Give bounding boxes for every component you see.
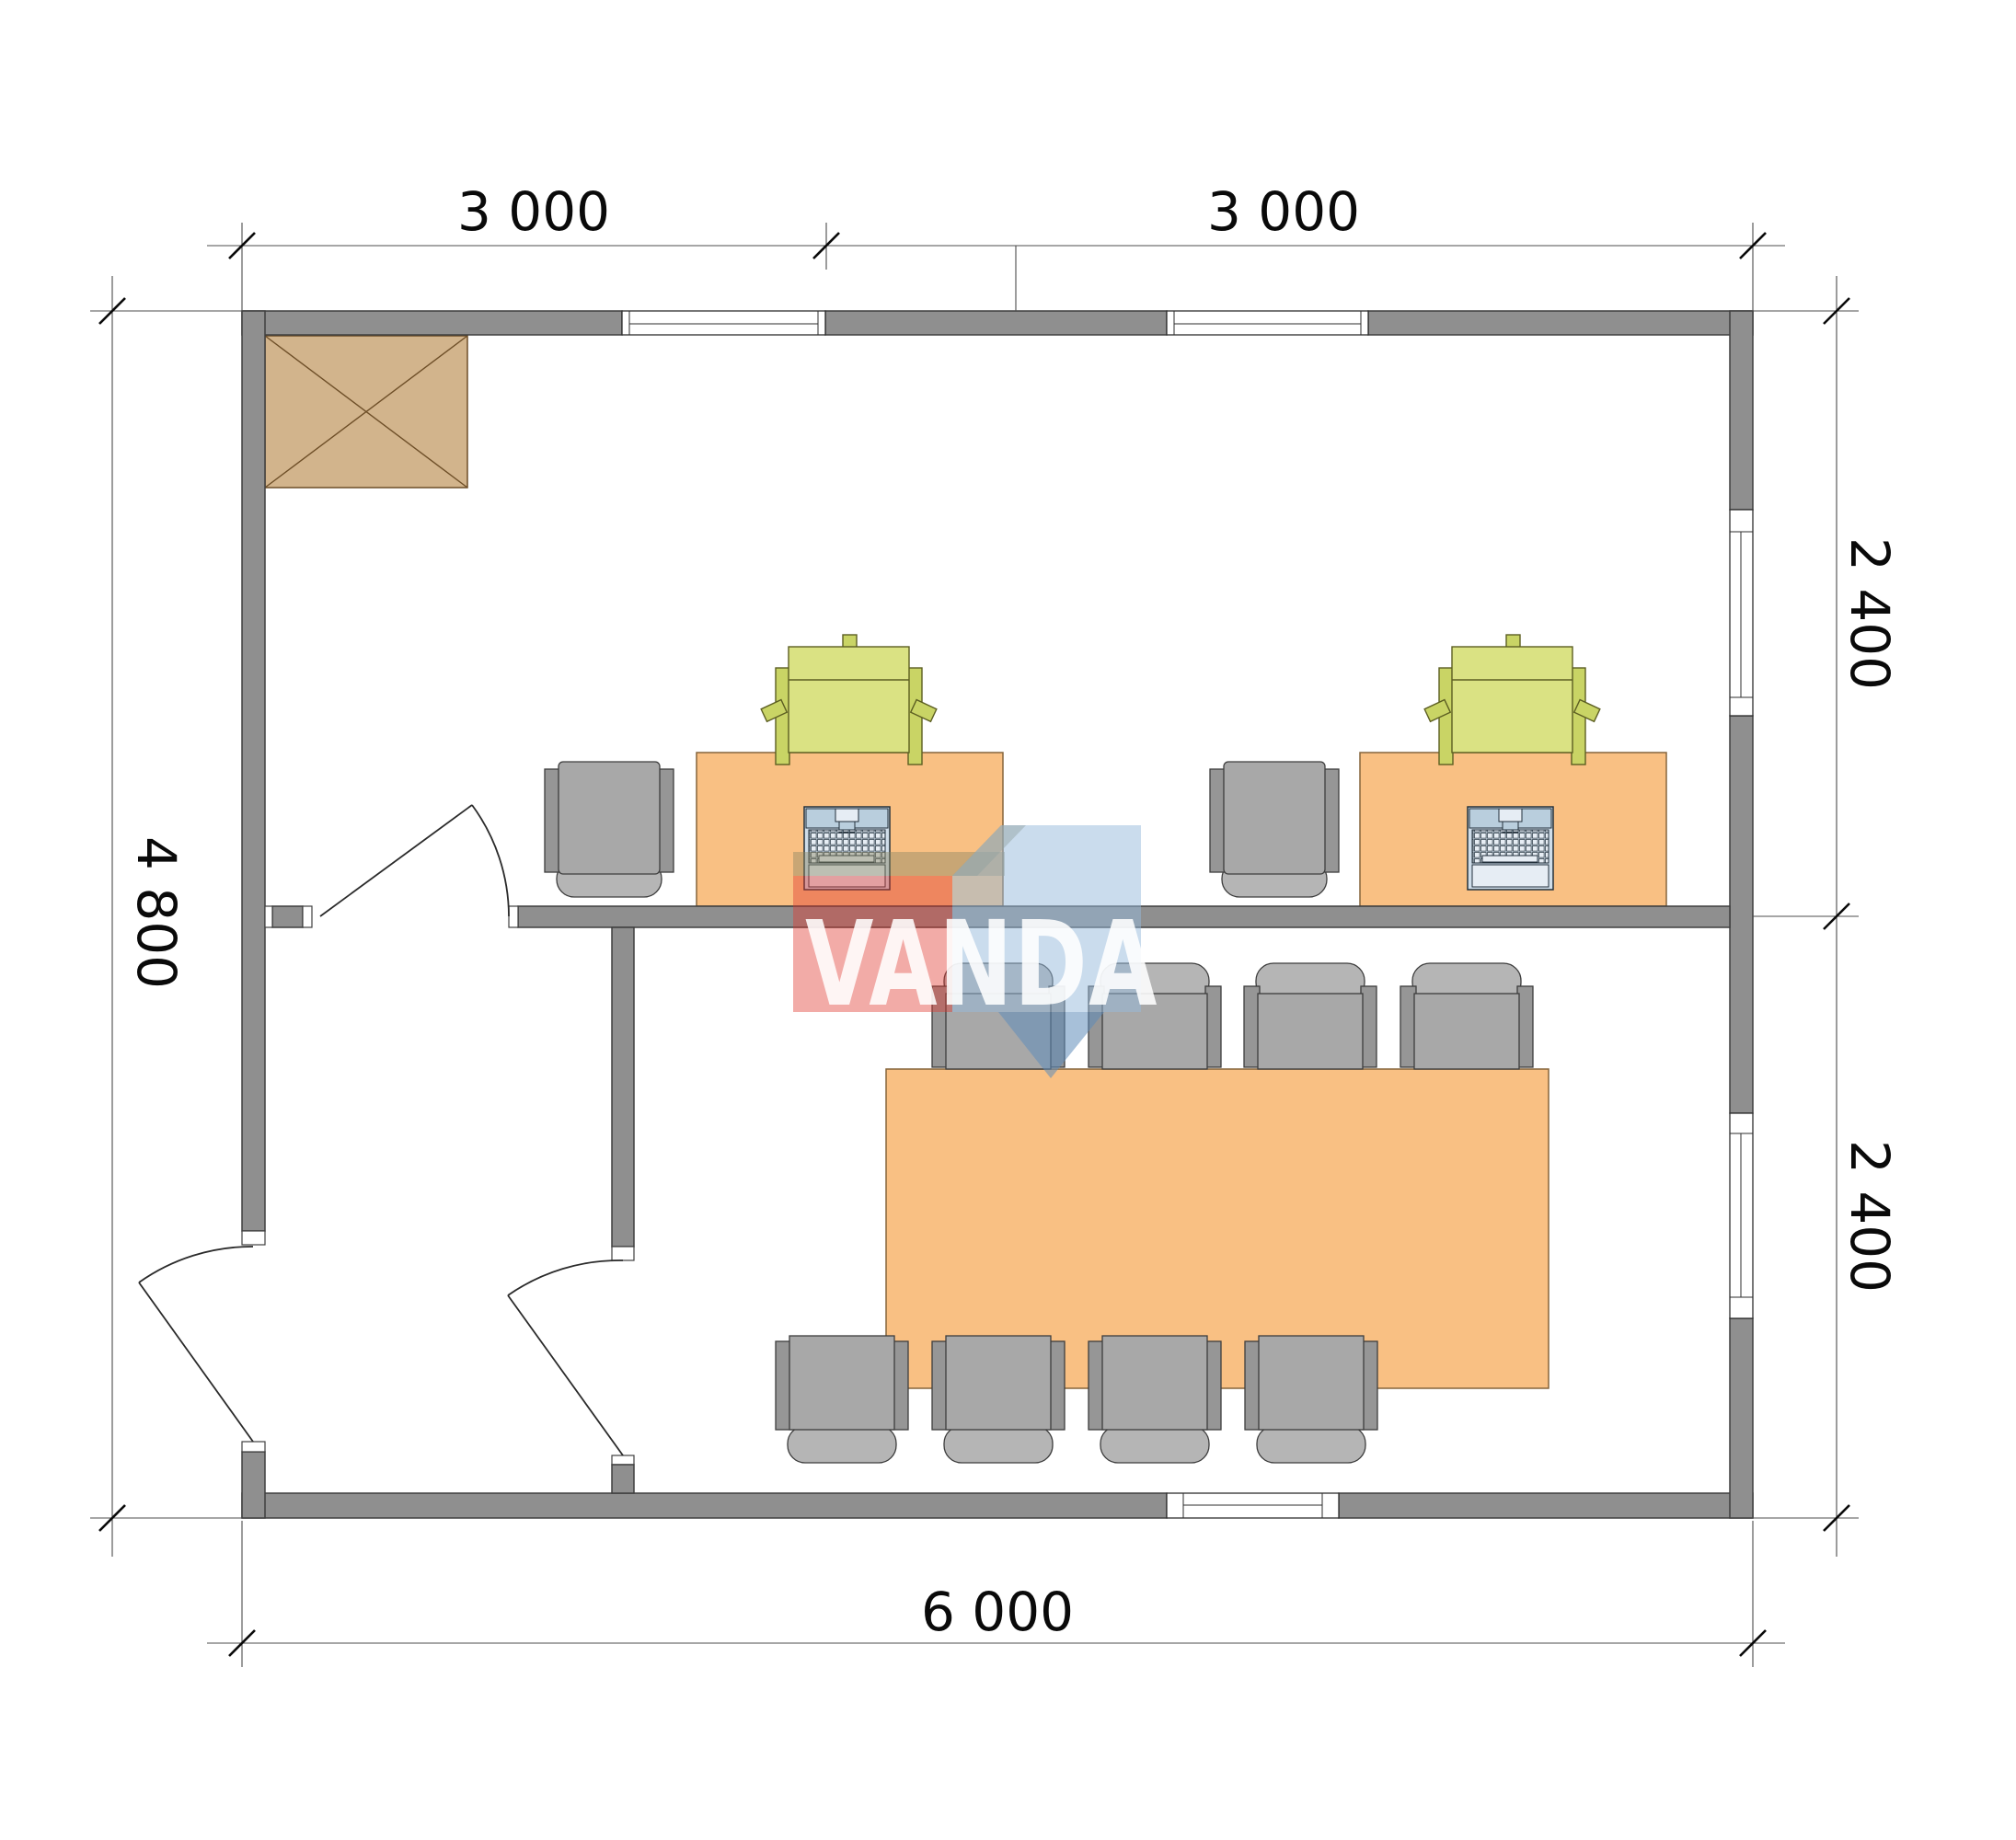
window-top-1	[622, 311, 825, 335]
door-meeting-room	[508, 1260, 623, 1455]
dim-label-right-upper: 2 400	[1838, 537, 1901, 690]
desk-chair-left	[545, 762, 674, 897]
dim-label-top-left: 3 000	[457, 180, 610, 243]
dimension-bottom: 6 000	[207, 1521, 1785, 1667]
doors	[139, 805, 623, 1455]
printer-right	[1424, 635, 1600, 765]
dimension-right: 2 400 2 400	[1753, 276, 1901, 1557]
window-right-lower	[1730, 1113, 1753, 1318]
floor-plan-drawing: VANDA 3 000 3 000 6 000	[0, 0, 2016, 1840]
meeting-chair-bottom-4	[1245, 1336, 1377, 1463]
watermark-text: VANDA	[805, 895, 1158, 1032]
meeting-chair-bottom-1	[776, 1336, 908, 1463]
meeting-chair-top-3	[1244, 963, 1377, 1069]
floor-plan-canvas: VANDA 3 000 3 000 6 000	[0, 0, 2016, 1840]
meeting-chair-top-4	[1400, 963, 1533, 1069]
dim-label-top-right: 3 000	[1207, 180, 1360, 243]
window-bottom	[1167, 1493, 1339, 1518]
dim-label-left: 4 800	[125, 836, 188, 989]
meeting-chair-bottom-3	[1089, 1336, 1221, 1463]
door-office	[320, 805, 509, 916]
laptop-right	[1468, 807, 1553, 890]
dimension-left: 4 800	[90, 276, 242, 1557]
meeting-chair-bottom-2	[932, 1336, 1065, 1463]
window-top-2	[1167, 311, 1368, 335]
door-entrance	[139, 1247, 253, 1442]
cabinet	[265, 336, 467, 488]
window-right-upper	[1730, 510, 1753, 716]
dim-label-right-lower: 2 400	[1838, 1140, 1901, 1293]
printer-left	[761, 635, 937, 765]
dimension-top: 3 000 3 000	[207, 180, 1785, 311]
desk-chair-right	[1210, 762, 1339, 897]
dim-label-bottom: 6 000	[921, 1581, 1074, 1643]
